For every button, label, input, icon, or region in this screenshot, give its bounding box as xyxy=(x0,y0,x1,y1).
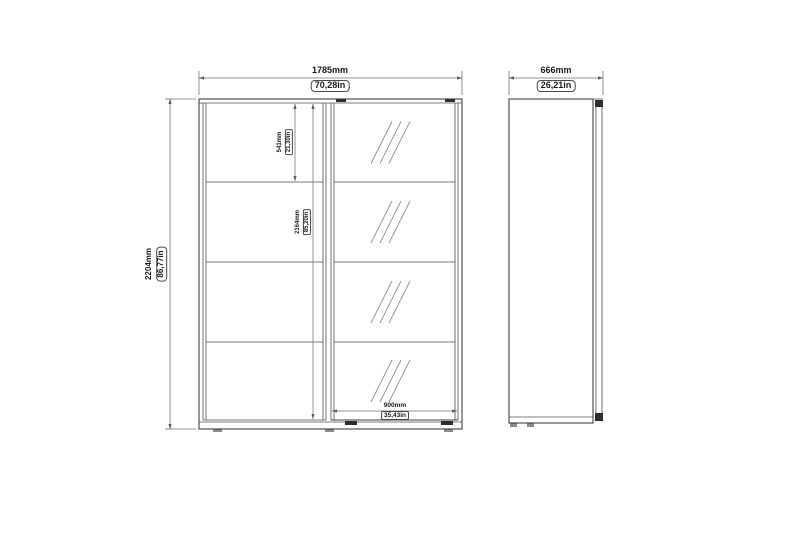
dim-door-height-inches: 85,20in xyxy=(303,209,312,235)
dim-door-height: 2164mm 85,20in xyxy=(295,209,311,235)
dim-depth-mm: 666mm xyxy=(540,66,571,76)
dim-front-width-mm: 1785mm xyxy=(312,66,348,76)
dim-height: 2204mm 86,77in xyxy=(145,246,167,281)
dim-depth: 666mm 26,21in xyxy=(537,66,576,92)
dim-mirror-door-width-inches: 35,43in xyxy=(381,411,409,420)
dim-top-panel-height-mm: 541mm xyxy=(277,132,284,153)
dim-front-width: 1785mm 70,28in xyxy=(311,66,350,92)
technical-drawing: 1785mm 70,28in 666mm 26,21in 2204mm 86,7… xyxy=(0,0,800,533)
side-view xyxy=(509,99,603,427)
front-view xyxy=(199,99,462,432)
dim-top-panel-height-inches: 21,30in xyxy=(285,129,294,155)
dim-front-width-inches: 70,28in xyxy=(311,80,350,92)
side-door-slab xyxy=(595,100,603,421)
dim-mirror-door-width: 900mm 35,43in xyxy=(381,402,409,420)
dim-mirror-door-width-mm: 900mm xyxy=(384,402,406,409)
dim-height-inches: 86,77in xyxy=(156,246,167,281)
dim-depth-inches: 26,21in xyxy=(537,80,576,92)
front-outline xyxy=(199,99,462,429)
drawing-linework xyxy=(0,0,800,533)
side-body-outline xyxy=(509,99,593,423)
side-feet-marks xyxy=(510,423,534,427)
dim-door-height-mm: 2164mm xyxy=(295,210,302,234)
dim-top-panel-height: 541mm 21,30in xyxy=(277,129,293,155)
left-door xyxy=(203,103,326,420)
dim-height-mm: 2204mm xyxy=(145,248,154,280)
